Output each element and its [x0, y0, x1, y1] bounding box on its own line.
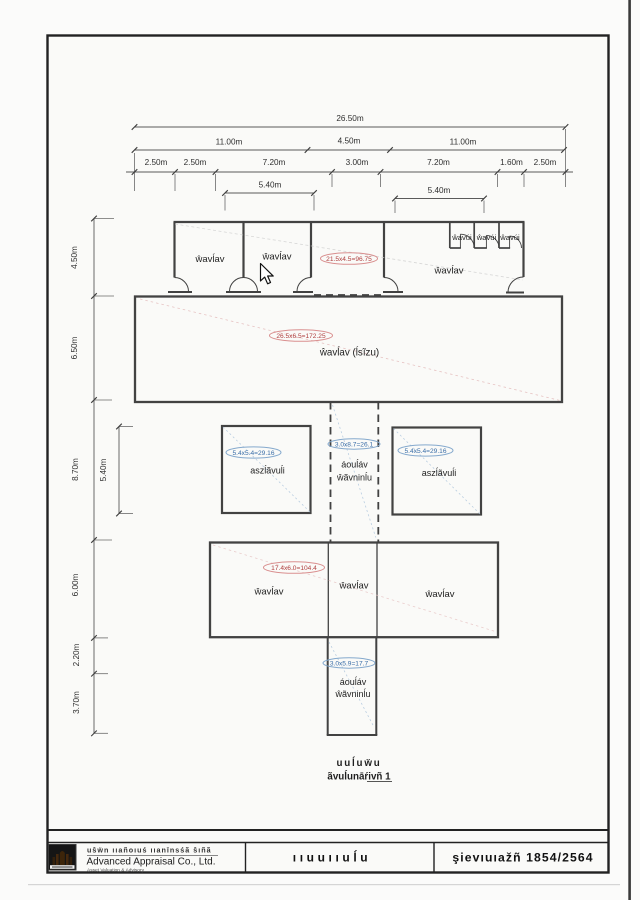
svg-text:4.50m: 4.50m — [338, 137, 361, 146]
svg-text:3.70m: 3.70m — [72, 691, 81, 714]
svg-text:Asset Valuation & Advisory: Asset Valuation & Advisory — [87, 868, 145, 874]
svg-text:26.5x6.5=172.25: 26.5x6.5=172.25 — [276, 333, 326, 340]
svg-text:4.50m: 4.50m — [70, 246, 79, 269]
svg-text:3.0x5.9=17.7: 3.0x5.9=17.7 — [330, 661, 369, 668]
svg-text:uuĺuẅu: uuĺuẅu — [336, 757, 381, 769]
svg-text:7.20m: 7.20m — [427, 158, 450, 167]
svg-text:ŵavĺav: ŵavĺav — [253, 586, 283, 598]
svg-text:áouĺáv: áouĺáv — [340, 676, 367, 687]
svg-text:2.50m: 2.50m — [184, 158, 207, 167]
svg-text:áouĺáv: áouĺáv — [341, 459, 368, 470]
svg-text:6.00m: 6.00m — [71, 573, 80, 596]
svg-text:ŵavĺav: ŵavĺav — [424, 588, 454, 600]
svg-text:şievıuıažñ 1854/2564: şievıuıažñ 1854/2564 — [452, 851, 593, 865]
svg-text:21.5x4.5=96.75: 21.5x4.5=96.75 — [326, 256, 372, 263]
svg-text:2.50m: 2.50m — [534, 158, 557, 167]
svg-text:ŵavúi: ŵavúi — [451, 233, 472, 242]
svg-text:uŝẅn ııañoıuś ııanīnsśã ŝıñã: uŝẅn ııañoıuś ııanīnsśã ŝıñã — [87, 846, 212, 855]
svg-text:ŵavĺav: ŵavĺav — [338, 580, 368, 592]
svg-text:ŵavĺav: ŵavĺav — [261, 251, 291, 263]
svg-text:5.4x5.4=29.16: 5.4x5.4=29.16 — [405, 448, 447, 455]
svg-text:1.60m: 1.60m — [500, 158, 523, 167]
svg-text:7.20m: 7.20m — [263, 158, 286, 167]
svg-text:5.4x5.4=29.16: 5.4x5.4=29.16 — [233, 450, 275, 457]
svg-text:11.00m: 11.00m — [216, 138, 243, 147]
svg-text:ŵavúi: ŵavúi — [476, 233, 497, 242]
svg-text:8.70m: 8.70m — [71, 458, 80, 481]
svg-text:11.00m: 11.00m — [450, 138, 477, 147]
svg-text:5.40m: 5.40m — [99, 458, 108, 481]
svg-text:ŵavĺav: ŵavĺav — [194, 253, 224, 265]
svg-text:2.20m: 2.20m — [72, 643, 81, 666]
svg-text:ŵavĺav: ŵavĺav — [433, 265, 463, 277]
svg-text:3.0x8.7=26.1: 3.0x8.7=26.1 — [335, 442, 374, 449]
svg-text:6.50m: 6.50m — [70, 336, 79, 359]
svg-text:17.4x6.0=104.4: 17.4x6.0=104.4 — [271, 565, 317, 572]
svg-text:26.50m: 26.50m — [336, 114, 363, 123]
svg-text:aszĺãvuĺi: aszĺãvuĺi — [422, 467, 457, 478]
svg-text:5.40m: 5.40m — [428, 186, 451, 195]
svg-text:2.50m: 2.50m — [145, 158, 168, 167]
svg-text:ŵavúi: ŵavúi — [499, 233, 520, 242]
svg-text:ŵãvninĺu: ŵãvninĺu — [336, 472, 372, 483]
svg-text:ııuuııuĺu: ııuuııuĺu — [293, 850, 371, 865]
svg-text:3.00m: 3.00m — [346, 158, 369, 167]
svg-text:ãvuĺunāŕivñ 1: ãvuĺunāŕivñ 1 — [327, 771, 391, 783]
svg-text:ŵãvninĺu: ŵãvninĺu — [334, 688, 370, 699]
svg-text:aszĺãvuĺi: aszĺãvuĺi — [250, 465, 285, 476]
svg-text:5.40m: 5.40m — [259, 181, 282, 190]
svg-text:ŵavĺav (ĺsĩzu): ŵavĺav (ĺsĩzu) — [319, 347, 379, 359]
svg-text:Advanced Appraisal Co., Ltd.: Advanced Appraisal Co., Ltd. — [87, 857, 216, 868]
